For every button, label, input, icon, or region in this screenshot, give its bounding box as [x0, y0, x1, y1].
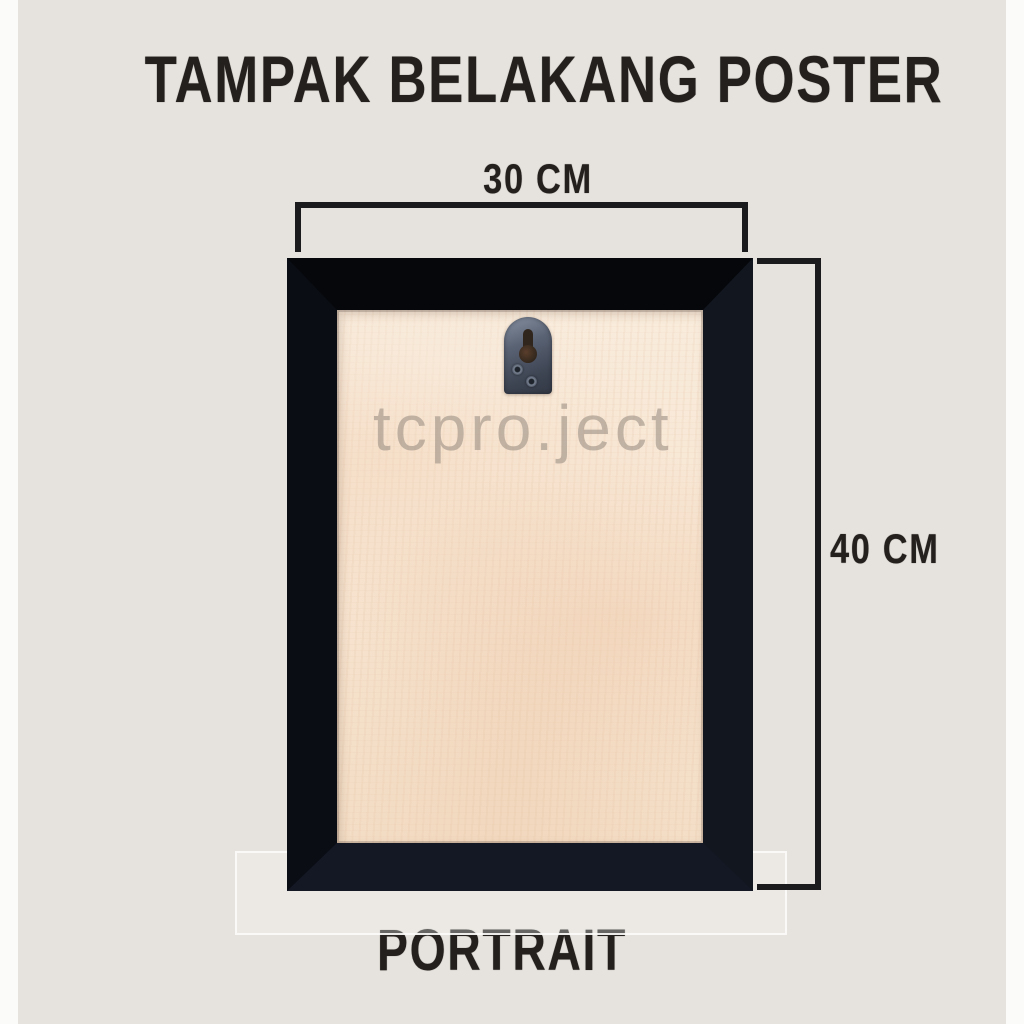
product-dimension-diagram: TAMPAK BELAKANG POSTER 30 CM 40 CM tcpro…: [0, 0, 1024, 1024]
right-white-strip: [1006, 0, 1024, 1024]
hanger-screw-right: [526, 376, 537, 387]
plywood-back-panel: tcpro.ject: [337, 310, 703, 843]
height-dimension-bracket: [757, 258, 821, 890]
height-dimension-label: 40 CM: [830, 528, 940, 570]
keyhole-hole: [519, 345, 537, 363]
page-title: TAMPAK BELAKANG POSTER: [145, 46, 944, 112]
width-dimension-bracket: [295, 202, 748, 252]
left-white-strip: [0, 0, 18, 1024]
keyhole-hanger-bracket: [504, 317, 552, 394]
width-dimension-label: 30 CM: [483, 158, 593, 200]
hanger-screw-left: [512, 364, 523, 375]
poster-frame-back: tcpro.ject: [287, 258, 753, 891]
seller-watermark: tcpro.ject: [373, 396, 673, 460]
